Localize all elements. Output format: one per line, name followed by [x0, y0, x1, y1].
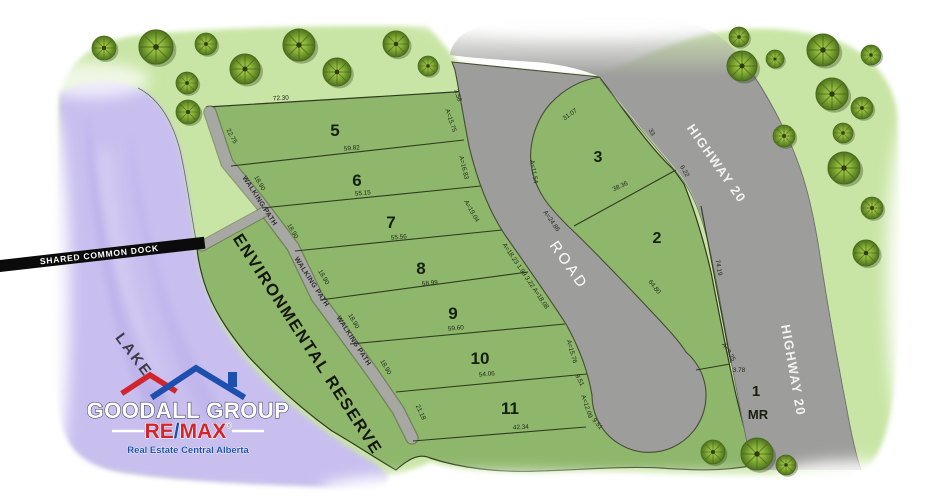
dimension-label: 55.15: [355, 189, 372, 197]
site-plan-map: SHARED COMMON DOCK LAKE ENVIRONMENTAL RE…: [0, 0, 930, 500]
lot-number: 6: [352, 171, 361, 190]
dimension-label: 3.78: [733, 367, 746, 374]
lot-number: MR: [748, 407, 769, 422]
dimension-label: 59.82: [344, 144, 361, 152]
dimension-label: 54.06: [479, 370, 496, 378]
map-canvas: SHARED COMMON DOCK LAKE ENVIRONMENTAL RE…: [0, 0, 930, 500]
dimension-label: 59.60: [448, 324, 465, 332]
lot-number: 9: [448, 304, 457, 323]
lot-number: 2: [653, 230, 662, 247]
logo-tagline: Real Estate Central Alberta: [127, 445, 249, 456]
dimension-label: 55.56: [391, 233, 408, 241]
lot-number: 3: [594, 149, 603, 166]
dimension-label: 58.99: [422, 279, 439, 287]
dimension-label: 72.30: [273, 94, 290, 102]
lot-number: 11: [501, 399, 519, 418]
lot-number: 10: [471, 349, 490, 368]
logo-remax-max: MAX: [180, 420, 227, 443]
lot-number: 1: [752, 383, 760, 400]
lot-number: 8: [416, 259, 425, 278]
logo-registered-mark: ®: [226, 422, 232, 430]
lot-number: 7: [386, 213, 395, 232]
logo-remax: RE/MAX®: [145, 420, 233, 443]
lot-number: 5: [330, 121, 339, 140]
logo-remax-re: RE: [145, 420, 174, 443]
dimension-label: 42.34: [513, 423, 530, 431]
